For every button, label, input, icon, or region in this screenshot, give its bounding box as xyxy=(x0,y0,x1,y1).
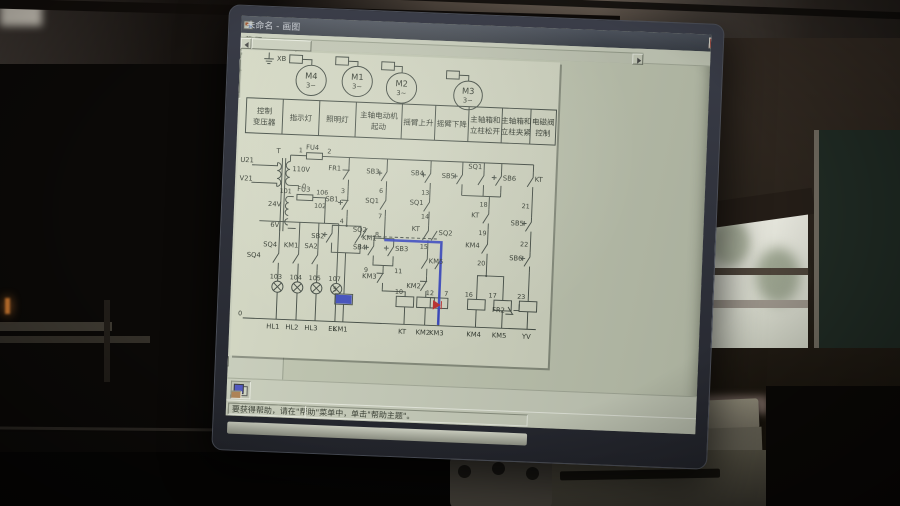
svg-text:SQ4: SQ4 xyxy=(247,251,261,260)
window-frame-bar xyxy=(702,268,808,275)
svg-text:FR1: FR1 xyxy=(328,164,341,173)
svg-text:SQ2: SQ2 xyxy=(353,226,367,235)
svg-text:7: 7 xyxy=(444,291,448,298)
svg-text:SB5: SB5 xyxy=(510,219,524,228)
dark-pillar xyxy=(766,386,900,506)
svg-text:103: 103 xyxy=(270,273,282,280)
function-header-table: 控制变压器 指示灯 照明灯 主轴电动机起动 摇臂上升 摇臂下降 主轴箱和立柱松开… xyxy=(245,98,556,145)
svg-text:23: 23 xyxy=(517,294,525,301)
svg-text:3~: 3~ xyxy=(396,89,406,97)
svg-text:SB6: SB6 xyxy=(509,254,523,263)
svg-text:3~: 3~ xyxy=(306,81,316,89)
svg-text:KM5: KM5 xyxy=(492,331,507,340)
svg-text:3: 3 xyxy=(341,188,345,195)
scroll-thumb[interactable] xyxy=(229,58,241,92)
window-sill xyxy=(702,300,808,308)
svg-text:21: 21 xyxy=(521,203,529,210)
svg-text:11: 11 xyxy=(394,268,402,275)
svg-text:M3: M3 xyxy=(462,86,475,96)
svg-text:SB4: SB4 xyxy=(353,243,367,252)
svg-text:SQ1: SQ1 xyxy=(365,197,379,206)
svg-text:107: 107 xyxy=(328,276,340,283)
svg-text:SB5: SB5 xyxy=(442,172,456,181)
svg-text:SB3: SB3 xyxy=(395,245,409,254)
window-title: 未命名 - 画图 xyxy=(246,18,300,33)
close-icon[interactable]: ✕ xyxy=(709,38,712,50)
scroll-right-icon[interactable] xyxy=(632,53,643,64)
scroll-down-icon[interactable] xyxy=(226,355,229,366)
svg-text:3~: 3~ xyxy=(352,82,362,90)
svg-text:3~: 3~ xyxy=(463,96,473,104)
indicator-lamp-glow xyxy=(5,298,10,314)
svg-text:立柱夹紧: 立柱夹紧 xyxy=(501,126,532,137)
desk-edge xyxy=(0,322,112,331)
svg-text:104: 104 xyxy=(290,274,302,281)
scroll-thumb[interactable] xyxy=(251,38,311,51)
svg-text:指示灯: 指示灯 xyxy=(289,112,312,123)
svg-text:SB4: SB4 xyxy=(411,169,425,178)
svg-text:SB3: SB3 xyxy=(366,167,380,176)
motor-symbols: M43~ M13~ M23~ M33~ XB xyxy=(263,52,484,110)
svg-text:FU3: FU3 xyxy=(297,185,310,194)
scroll-left-icon[interactable] xyxy=(240,38,251,49)
svg-text:101: 101 xyxy=(279,188,291,195)
svg-text:变压器: 变压器 xyxy=(253,116,276,127)
classroom-photo: 17 + 未命名 - 画图 – □ ✕ xyxy=(0,0,900,506)
svg-text:主轴箱和: 主轴箱和 xyxy=(470,114,501,125)
status-size xyxy=(228,402,306,417)
svg-text:102: 102 xyxy=(314,203,326,210)
svg-text:10: 10 xyxy=(395,289,403,296)
svg-text:照明灯: 照明灯 xyxy=(326,114,349,125)
svg-text:控制: 控制 xyxy=(535,128,550,139)
svg-text:17: 17 xyxy=(488,293,496,300)
scroll-up-icon[interactable] xyxy=(230,47,241,58)
svg-text:KM4: KM4 xyxy=(465,241,480,250)
svg-text:HL1: HL1 xyxy=(266,322,279,331)
svg-text:KM5: KM5 xyxy=(429,257,444,266)
svg-text:M1: M1 xyxy=(351,72,364,82)
svg-text:主轴箱和: 主轴箱和 xyxy=(501,115,532,126)
svg-text:SB6: SB6 xyxy=(503,174,517,183)
svg-text:FR2: FR2 xyxy=(492,306,505,315)
svg-text:24V: 24V xyxy=(268,200,282,209)
blue-highlight-km1-coil xyxy=(336,295,352,304)
svg-text:M4: M4 xyxy=(305,71,318,81)
svg-text:SQ1: SQ1 xyxy=(468,163,482,172)
svg-text:22: 22 xyxy=(520,241,528,248)
svg-text:SQ1: SQ1 xyxy=(409,198,423,207)
svg-text:18: 18 xyxy=(479,201,487,208)
svg-text:KM2: KM2 xyxy=(406,282,421,291)
svg-text:4: 4 xyxy=(340,218,344,225)
svg-text:YV: YV xyxy=(521,333,531,341)
svg-text:105: 105 xyxy=(309,275,321,282)
svg-text:V21: V21 xyxy=(239,174,253,183)
paint-canvas[interactable]: M43~ M13~ M23~ M33~ XB 控制变压器 xyxy=(230,50,560,369)
svg-text:M2: M2 xyxy=(395,78,408,88)
svg-text:15: 15 xyxy=(420,244,428,251)
svg-text:16: 16 xyxy=(465,292,473,299)
svg-text:起动: 起动 xyxy=(371,121,387,132)
svg-text:摇臂上升: 摇臂上升 xyxy=(403,117,434,128)
svg-text:SB2: SB2 xyxy=(311,232,325,241)
svg-text:6V: 6V xyxy=(270,221,280,229)
svg-text:SA2: SA2 xyxy=(304,242,318,251)
svg-text:SQ4: SQ4 xyxy=(263,240,277,249)
svg-text:HL2: HL2 xyxy=(285,323,298,332)
svg-text:5: 5 xyxy=(333,286,337,293)
tree-silhouette xyxy=(756,248,800,304)
projector-screen: 未命名 - 画图 – □ ✕ 文件(F) 编辑(E) 查看(V) 图像(I) 颜… xyxy=(226,16,712,435)
svg-text:KM2: KM2 xyxy=(415,328,430,337)
chalkboard: 17 + xyxy=(814,130,900,348)
svg-text:U21: U21 xyxy=(240,156,254,165)
svg-text:T: T xyxy=(275,147,281,155)
svg-text:主轴电动机: 主轴电动机 xyxy=(360,109,399,121)
svg-text:FU4: FU4 xyxy=(306,143,319,152)
svg-text:13: 13 xyxy=(421,190,429,197)
svg-text:KT: KT xyxy=(412,225,421,233)
svg-text:1: 1 xyxy=(299,147,303,154)
circuit-schematic: M43~ M13~ M23~ M33~ XB 控制变压器 xyxy=(230,50,560,369)
svg-text:KM3: KM3 xyxy=(429,329,444,338)
svg-text:KM3: KM3 xyxy=(362,272,377,281)
svg-text:KT: KT xyxy=(534,176,543,184)
svg-text:110V: 110V xyxy=(292,165,310,174)
smartboard: 未命名 - 画图 – □ ✕ 文件(F) 编辑(E) 查看(V) 图像(I) 颜… xyxy=(211,4,724,470)
desk-edge xyxy=(0,336,150,343)
svg-text:HL3: HL3 xyxy=(304,324,317,333)
svg-text:19: 19 xyxy=(478,230,486,237)
svg-text:电磁阀: 电磁阀 xyxy=(532,116,555,127)
svg-text:摇臂下降: 摇臂下降 xyxy=(436,118,467,129)
color-swatch[interactable] xyxy=(230,390,241,398)
svg-text:7: 7 xyxy=(378,213,382,220)
svg-text:2: 2 xyxy=(327,148,331,155)
svg-text:KM4: KM4 xyxy=(466,330,481,339)
svg-text:SQ2: SQ2 xyxy=(438,229,452,238)
svg-text:KM1: KM1 xyxy=(284,241,299,250)
svg-text:12: 12 xyxy=(426,290,434,297)
svg-text:立柱松开: 立柱松开 xyxy=(470,125,501,136)
client-area: A xyxy=(227,48,710,397)
svg-text:KT: KT xyxy=(398,328,407,336)
svg-text:0: 0 xyxy=(238,310,242,317)
svg-text:SB1: SB1 xyxy=(325,195,339,204)
svg-text:KM1: KM1 xyxy=(333,325,348,334)
svg-text:20: 20 xyxy=(477,260,485,267)
svg-text:控制: 控制 xyxy=(257,105,272,116)
svg-text:8: 8 xyxy=(375,231,379,238)
svg-text:14: 14 xyxy=(421,213,429,220)
svg-text:XB: XB xyxy=(277,55,287,63)
svg-text:KT: KT xyxy=(471,211,480,219)
desk-leg xyxy=(104,300,110,382)
aluminum-profile xyxy=(450,456,552,506)
svg-text:6: 6 xyxy=(379,188,383,195)
